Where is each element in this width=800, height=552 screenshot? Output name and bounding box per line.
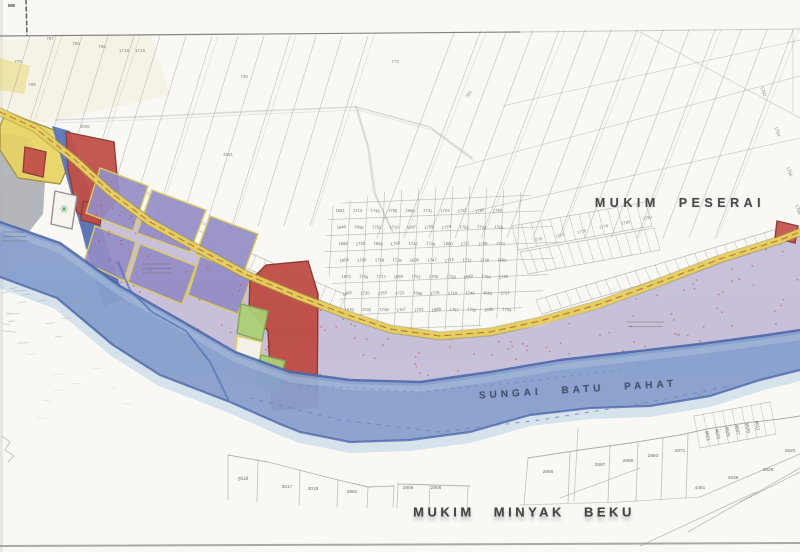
lavender-speckle xyxy=(112,207,114,209)
parcel-number: 1714 xyxy=(448,290,458,296)
lavender-speckle xyxy=(149,270,151,272)
lavender-speckle xyxy=(267,346,269,348)
lavender-speckle xyxy=(199,299,201,301)
lavender-speckle xyxy=(510,341,512,343)
parcel-number: 1747 xyxy=(427,257,437,262)
lavender-speckle xyxy=(415,356,417,358)
lavender-speckle xyxy=(139,291,141,293)
lavender-speckle xyxy=(751,265,753,267)
lavender-speckle xyxy=(374,358,376,360)
parcel-number: 1718 xyxy=(119,48,130,53)
lavender-speckle xyxy=(186,271,188,273)
lavender-speckle xyxy=(679,334,681,336)
lavender-speckle xyxy=(148,256,150,257)
lavender-speckle xyxy=(265,349,267,351)
lavender-speckle xyxy=(297,308,299,310)
lavender-speckle xyxy=(230,332,232,334)
lavender-speckle xyxy=(549,351,551,353)
parcel-number: 1750 xyxy=(388,208,398,214)
lavender-speckle xyxy=(449,346,451,348)
lavender-speckle xyxy=(387,339,389,341)
parcel-number: 2909 xyxy=(403,485,414,491)
lavender-speckle xyxy=(560,343,562,345)
zoning-map-scan: 1691171317461750169817311704172217651749… xyxy=(0,0,800,552)
lavender-speckle xyxy=(119,215,121,217)
parcel-number: 1687 xyxy=(407,224,417,230)
parcel-number: 2908 xyxy=(431,485,442,491)
parcel-number: 4628 xyxy=(763,467,774,473)
lavender-speckle xyxy=(622,350,624,352)
lavender-speckle xyxy=(703,326,705,328)
parcel-number: 1731 xyxy=(423,208,433,214)
parcel-number: 1704 xyxy=(440,208,450,213)
lavender-speckle xyxy=(109,259,111,261)
lavender-speckle xyxy=(511,346,513,348)
lavender-speckle xyxy=(135,233,137,235)
lavender-speckle xyxy=(473,354,475,356)
lavender-speckle xyxy=(96,214,98,216)
lavender-speckle xyxy=(721,311,723,313)
parcel-number: 1700 xyxy=(357,257,367,263)
lavender-speckle xyxy=(522,343,524,345)
lavender-speckle xyxy=(753,285,755,287)
lavender-speckle xyxy=(546,346,548,348)
parcel-number: 1640 xyxy=(336,224,346,230)
lavender-speckle xyxy=(775,323,777,325)
lavender-speckle xyxy=(599,334,601,336)
lavender-speckle xyxy=(129,218,131,220)
lavender-speckle xyxy=(632,315,634,317)
lavender-speckle xyxy=(342,318,344,320)
lavender-speckle xyxy=(161,236,163,238)
lavender-speckle xyxy=(609,332,611,334)
parcel-number: 797 xyxy=(46,36,54,41)
lavender-speckle xyxy=(131,216,133,218)
parcel-number: 1745 xyxy=(465,290,475,295)
lavender-speckle xyxy=(644,346,646,348)
parcel-number: 2887 xyxy=(595,462,606,468)
lavender-speckle xyxy=(782,299,784,301)
parcel-number: 4481 xyxy=(695,485,706,491)
facility-symbol-icon: ✳ xyxy=(59,204,68,216)
lavender-speckle xyxy=(656,295,658,297)
lavender-speckle xyxy=(731,281,733,283)
lavender-speckle xyxy=(457,370,459,372)
lavender-speckle xyxy=(315,329,317,331)
lavender-speckle xyxy=(270,303,272,305)
parcel-number: 1698 xyxy=(405,208,415,214)
lavender-speckle xyxy=(354,325,356,327)
scan-artifact-topleft xyxy=(8,4,15,7)
parcel-number: 4639 xyxy=(728,475,739,481)
parcel-number: 1719 xyxy=(135,48,146,53)
parcel-number: 750 xyxy=(98,44,106,49)
zoning-map-canvas: 1691171317461750169817311704172217651749… xyxy=(0,0,800,552)
parcel-number: 1710 xyxy=(389,224,399,230)
lavender-speckle xyxy=(231,294,233,296)
parcel-number: 3016 xyxy=(308,486,319,492)
parcel-number: 789 xyxy=(28,82,36,87)
parcel-number: 1692 xyxy=(409,257,419,263)
parcel-number: 2890 xyxy=(623,458,634,464)
lavender-speckle xyxy=(207,268,209,270)
lavender-speckle xyxy=(782,251,784,253)
lavender-speckle xyxy=(739,278,741,280)
parcel-number: 1739 xyxy=(379,307,389,312)
parcel-number: 1736 xyxy=(480,257,490,262)
lavender-speckle xyxy=(526,350,528,352)
lavender-speckle xyxy=(320,326,322,328)
lavender-speckle xyxy=(674,333,676,335)
lavender-speckle xyxy=(673,319,675,321)
parcel-number: 1723 xyxy=(414,307,424,313)
lavender-speckle xyxy=(569,353,571,355)
parcel-number: 1695 xyxy=(497,257,507,263)
lavender-speckle xyxy=(718,294,720,296)
parcel-number: 1727 xyxy=(500,290,510,295)
lavender-speckle xyxy=(419,372,421,374)
lavender-speckle xyxy=(416,366,418,368)
lavender-speckle xyxy=(286,349,288,351)
parcel-number: 1752 xyxy=(372,224,382,230)
lavender-speckle xyxy=(418,352,420,354)
zone-red-small-1 xyxy=(23,147,46,177)
lavender-speckle xyxy=(108,234,110,236)
parcel-number: 2982 xyxy=(347,489,358,495)
parcel-number: 1673 xyxy=(341,274,351,280)
lavender-speckle xyxy=(692,283,694,285)
lavender-speckle xyxy=(696,279,698,281)
parcel-number: 1706 xyxy=(429,274,439,279)
lavender-speckle xyxy=(694,288,696,290)
lavender-speckle xyxy=(635,298,637,300)
parcel-number: 2618 xyxy=(237,476,248,483)
parcel-number: 1728 xyxy=(355,241,365,247)
parcel-number: 3091 xyxy=(223,152,234,157)
lavender-speckle xyxy=(350,323,352,325)
parcel-number: 1711 xyxy=(462,257,472,262)
lavender-speckle xyxy=(120,240,122,242)
parcel-number: 1740 xyxy=(499,274,509,280)
lavender-speckle xyxy=(677,334,679,336)
parcel-number: 1702 xyxy=(362,307,372,312)
lavender-speckle xyxy=(427,375,429,377)
parcel-number: 1683 xyxy=(483,290,493,296)
lavender-speckle xyxy=(687,335,689,337)
lavender-speckle xyxy=(731,269,733,271)
parcel-number: 1755 xyxy=(424,224,434,230)
lavender-speckle xyxy=(780,305,782,307)
lavender-speckle xyxy=(120,244,122,246)
parcel-number: 4620 xyxy=(785,448,796,454)
lavender-speckle xyxy=(252,293,254,295)
lavender-speckle xyxy=(716,308,718,310)
lavender-speckle xyxy=(264,298,266,300)
parcel-number: 756 xyxy=(72,41,80,46)
lavender-speckle xyxy=(165,295,167,297)
lavender-speckle xyxy=(240,284,242,286)
lavender-speckle xyxy=(507,348,509,350)
lavender-speckle xyxy=(324,329,326,331)
lavender-speckle xyxy=(152,236,154,238)
lavender-speckle xyxy=(527,345,529,347)
lavender-speckle xyxy=(515,358,517,360)
lavender-speckle xyxy=(731,325,733,327)
lavender-speckle xyxy=(293,360,295,362)
lavender-speckle xyxy=(120,282,122,284)
lavender-speckle xyxy=(414,363,416,365)
parcel-number: 779 xyxy=(14,59,22,64)
lavender-speckle xyxy=(797,279,799,281)
parcel-number: 1768 xyxy=(375,257,385,262)
lavender-speckle xyxy=(108,231,110,233)
lavender-speckle xyxy=(699,340,701,342)
lavender-speckle xyxy=(221,324,223,326)
lavender-speckle xyxy=(336,326,338,328)
lavender-speckle xyxy=(133,285,135,287)
lavender-speckle xyxy=(132,221,134,223)
lavender-speckle xyxy=(774,311,776,313)
lavender-speckle xyxy=(100,205,102,207)
lavender-speckle xyxy=(722,291,724,293)
parcel-number: 1771 xyxy=(496,241,506,247)
lavender-speckle xyxy=(115,263,117,265)
parcel-number: 773 xyxy=(391,59,399,64)
parcel-number: 1713 xyxy=(353,208,363,213)
lavender-speckle xyxy=(633,341,635,343)
lavender-speckle xyxy=(491,354,493,356)
lavender-speckle xyxy=(363,354,365,356)
lavender-speckle xyxy=(268,319,270,321)
parcel-number: 1666 xyxy=(338,241,348,246)
lavender-speckle xyxy=(239,290,241,292)
lavender-speckle xyxy=(498,341,500,343)
parcel-number: 2871 xyxy=(675,448,686,454)
lavender-speckle xyxy=(382,344,384,346)
lavender-speckle xyxy=(98,240,100,242)
parcel-number: 3017 xyxy=(282,484,293,490)
lavender-speckle xyxy=(671,313,673,315)
parcel-number: 1708 xyxy=(478,241,488,247)
parcel-number: 3090 xyxy=(80,124,91,129)
lavender-speckle xyxy=(568,323,570,325)
lavender-speckle xyxy=(354,337,356,339)
lavender-speckle xyxy=(366,338,368,340)
parcel-number: 2893 xyxy=(648,453,659,459)
lavender-speckle xyxy=(683,290,685,292)
lavender-speckle xyxy=(253,305,255,307)
parcel-number: 738 xyxy=(240,74,248,79)
parcel-number: 1735 xyxy=(360,290,370,295)
parcel-number: 2886 xyxy=(543,469,554,475)
lavender-speckle xyxy=(320,310,322,312)
parcel-number: 1691 xyxy=(335,208,345,213)
